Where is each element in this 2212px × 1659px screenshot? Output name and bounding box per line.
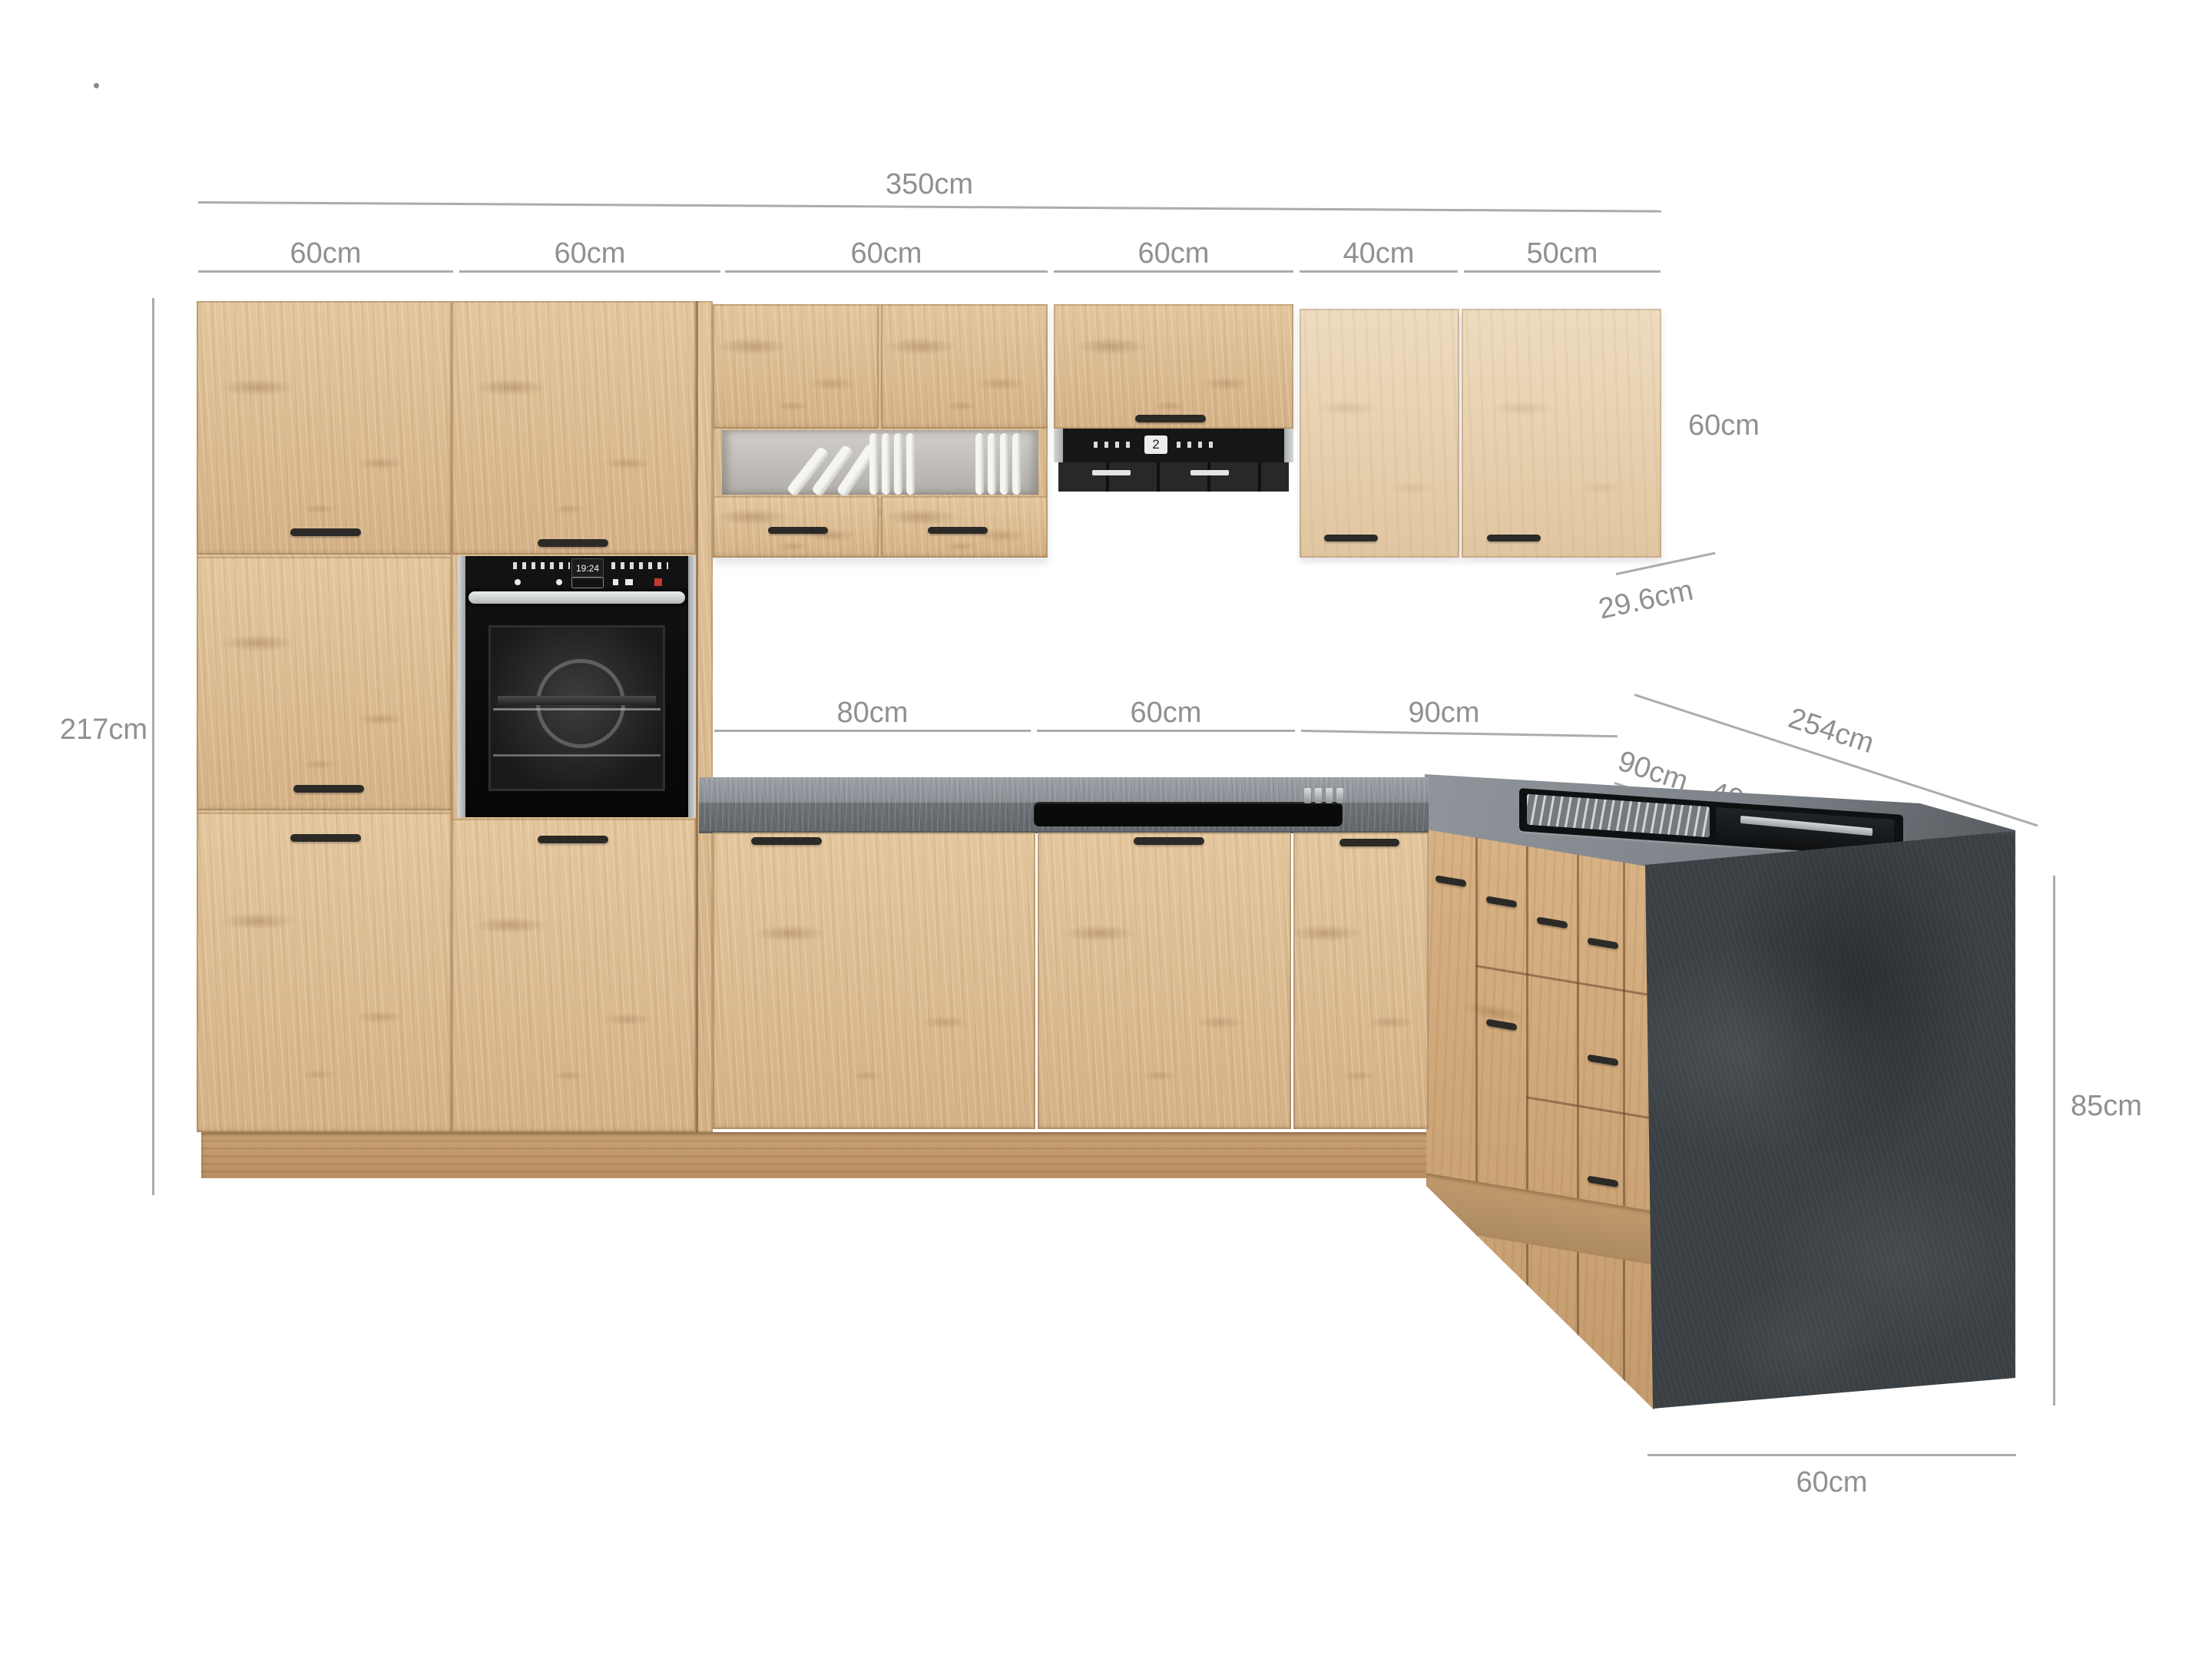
dim-seg1-label: 60cm: [272, 237, 379, 270]
hood-cabinet-handle: [1135, 415, 1206, 422]
dim-seg5-line: [1300, 270, 1458, 273]
island-handle-4: [1588, 937, 1618, 949]
dim-total-width-label: 350cm: [868, 167, 991, 201]
oven-trim-left: [458, 556, 465, 817]
island-plinth: [1425, 1173, 1657, 1266]
vertical-plate-5: [975, 433, 984, 495]
dim-worktop1-label: 80cm: [819, 696, 926, 730]
hood-cap-right: [1284, 429, 1293, 462]
oven-handle-bar: [469, 591, 685, 604]
oven-glass-door: [465, 607, 688, 817]
wall-cabinet-plate-rack: [713, 304, 1048, 558]
dim-worktop3-line: [1301, 730, 1618, 737]
dim-island-depth-label: 60cm: [1778, 1465, 1886, 1499]
dim-seg2-label: 60cm: [536, 237, 644, 270]
oven-control-icons-left: [513, 562, 570, 569]
vertical-plate-6: [988, 433, 996, 495]
vertical-plate-8: [1012, 433, 1021, 495]
oven-cabinet-door-bottom: [452, 819, 696, 1132]
tall-cabinet-left-handle-1: [290, 528, 361, 536]
dim-seg2-line: [459, 270, 720, 273]
base-door-90-handle: [1339, 839, 1399, 846]
plinth: [201, 1132, 1462, 1178]
island-side-panel: [1644, 828, 2017, 1412]
oven: 19:24: [458, 556, 696, 817]
island-drawer-block: [1425, 826, 1657, 1417]
dim-left-height-label: 217cm: [48, 713, 147, 747]
dim-seg3-label: 60cm: [833, 237, 940, 270]
oven-timer-icon: [625, 579, 633, 585]
oven-window: [488, 625, 665, 791]
base-door-80-handle: [751, 837, 822, 845]
hood-cabinet-door: [1054, 304, 1293, 429]
plate-cabinet-door-right: [881, 304, 1048, 429]
sink-drainer: [1527, 794, 1710, 838]
island-handle-6: [1588, 1054, 1618, 1066]
oven-button-fan-icon: [556, 579, 562, 585]
hood-display: 2: [1144, 435, 1167, 454]
oven-selector-icon: [571, 577, 604, 588]
dim-island-depth-line: [1647, 1454, 2016, 1456]
extractor-hood: 2: [1054, 429, 1293, 462]
dim-seg5-label: 40cm: [1325, 237, 1432, 270]
hood-control-icons-right: [1177, 442, 1218, 448]
hood-cap-left: [1054, 429, 1063, 462]
vertical-plate-4: [906, 433, 915, 495]
oven-power-icon: [654, 578, 662, 586]
dim-worktop3-label: 90cm: [1390, 696, 1498, 730]
vertical-plate-1: [869, 433, 878, 495]
tall-cabinet-left-handle-3: [290, 834, 361, 842]
base-door-80: [713, 833, 1035, 1129]
oven-temp-icon: [613, 579, 618, 585]
island-drawer-seam-2: [1526, 1096, 1657, 1120]
dim-left-height-line: [152, 298, 154, 1195]
kitchen-product-visualization: 350cm 60cm 60cm 60cm 60cm 40cm 50cm 217c…: [0, 0, 2212, 1659]
tall-cabinet-left-door-top: [197, 301, 452, 555]
tall-cabinet-left-handle-2: [293, 785, 364, 793]
island-handle-5: [1486, 1018, 1517, 1031]
island-handle-3: [1537, 916, 1568, 929]
oven-control-panel: 19:24: [465, 556, 688, 588]
oven-cabinet-handle-bottom: [538, 836, 608, 843]
oven-clock-display: 19:24: [571, 558, 604, 578]
base-door-90: [1293, 833, 1429, 1129]
oven-tray: [498, 696, 656, 705]
oven-control-icons-right: [611, 562, 668, 569]
island-drawer-skew: [1425, 826, 1657, 1449]
plate-cabinet-flap-handle-left: [768, 527, 828, 534]
oven-trim-right: [688, 556, 696, 817]
base-door-60: [1038, 833, 1291, 1129]
vertical-plate-3: [894, 433, 902, 495]
dim-island-total-label: 254cm: [1784, 701, 1878, 760]
hob-knob-4: [1336, 788, 1343, 803]
dim-worktop2-label: 60cm: [1112, 696, 1220, 730]
island-handle-7: [1588, 1175, 1618, 1187]
tall-cabinet-oven: 19:24: [452, 301, 713, 1132]
base-door-60-handle: [1134, 837, 1204, 845]
vertical-plate-2: [882, 433, 890, 495]
oven-rack-1: [493, 708, 661, 710]
hob-knob-1: [1304, 788, 1311, 803]
oven-rack-2: [493, 754, 661, 757]
plate-shelf: [722, 430, 1038, 495]
tall-cabinet-side-panel-seam: [696, 301, 698, 1132]
tall-cabinet-left-door-bottom: [197, 813, 452, 1132]
tall-cabinet-left-door-middle: [197, 557, 452, 810]
wall-cabinet-50-handle: [1487, 535, 1541, 541]
oven-cabinet-handle-top: [538, 539, 608, 547]
hob-knob-3: [1326, 788, 1333, 803]
dim-seg4-label: 60cm: [1120, 237, 1227, 270]
tall-cabinet-left: [197, 301, 452, 1132]
dim-seg6-label: 50cm: [1508, 237, 1616, 270]
dim-seg4-line: [1054, 270, 1293, 273]
dim-worktop2-line: [1037, 730, 1295, 732]
island-column-seam-3: [1577, 851, 1579, 1343]
wall-cabinet-40: [1300, 309, 1459, 558]
dim-total-width-line: [198, 201, 1661, 213]
hob-knob-2: [1315, 788, 1322, 803]
island-handle-1: [1435, 875, 1466, 887]
hood-control-icons-left: [1094, 442, 1135, 448]
dim-seg6-line: [1464, 270, 1661, 273]
plate-cabinet-flap-handle-right: [928, 527, 988, 534]
wall-cabinet-hood: 2: [1054, 304, 1293, 492]
dim-island-height-label: 85cm: [2071, 1089, 2142, 1123]
oven-button-light-icon: [515, 579, 521, 585]
dim-wall-height-label: 60cm: [1688, 409, 1760, 442]
plate-cabinet-door-left: [713, 304, 879, 429]
wall-cabinet-50: [1462, 309, 1661, 558]
dim-seg3-line: [725, 270, 1048, 273]
dim-seg1-line: [198, 270, 453, 273]
vertical-plate-7: [1000, 433, 1008, 495]
hob: [1034, 802, 1343, 826]
dim-island-height-line: [2053, 876, 2055, 1406]
island-drawer-seam-1: [1475, 965, 1657, 997]
hood-vent-slat-1: [1092, 470, 1131, 475]
island-handle-2: [1486, 896, 1517, 908]
island-column-seam-4: [1623, 859, 1625, 1382]
hood-vent-slat-2: [1190, 470, 1229, 475]
artifact-dot: [94, 83, 99, 88]
hood-vent: [1058, 462, 1289, 492]
dim-wall-depth-label: 29.6cm: [1595, 574, 1696, 627]
dim-worktop1-line: [714, 730, 1031, 732]
wall-cabinet-40-handle: [1324, 535, 1378, 541]
oven-cabinet-door-top: [452, 301, 696, 555]
